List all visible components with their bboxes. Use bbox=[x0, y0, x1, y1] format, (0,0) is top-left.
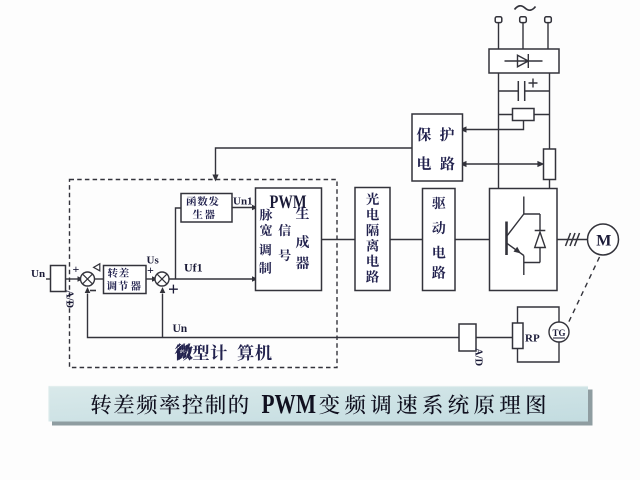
svg-text:Un: Un bbox=[173, 323, 188, 335]
svg-text:A/D: A/D bbox=[64, 290, 75, 309]
svg-text:M: M bbox=[596, 233, 611, 250]
svg-text:PWM: PWM bbox=[270, 192, 307, 213]
svg-text:+: + bbox=[147, 263, 154, 277]
svg-text:TG: TG bbox=[553, 328, 566, 338]
svg-text:+: + bbox=[73, 262, 80, 276]
svg-text:PWM: PWM bbox=[262, 389, 317, 419]
svg-text:RP: RP bbox=[525, 333, 540, 345]
svg-text:Un: Un bbox=[31, 268, 45, 280]
svg-text:Uf1: Uf1 bbox=[184, 261, 203, 275]
svg-text:A/D: A/D bbox=[473, 348, 484, 367]
svg-text:+: + bbox=[168, 280, 179, 301]
svg-text:Un1: Un1 bbox=[233, 196, 253, 208]
